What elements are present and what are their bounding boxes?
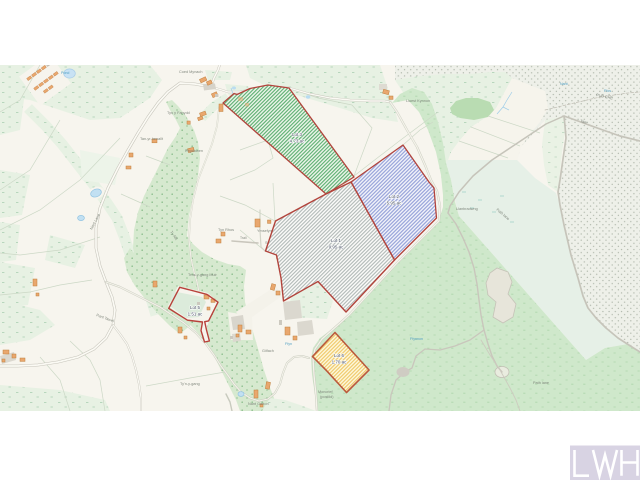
svg-text:Coed Mynach: Coed Mynach: [179, 70, 202, 74]
svg-text:4.73 ac: 4.73 ac: [290, 139, 306, 144]
svg-text:Tan-yr-henallt: Tan-yr-henallt: [140, 137, 164, 141]
svg-text:Path lane: Path lane: [533, 381, 549, 385]
svg-text:Tros-y-gang Muir: Tros-y-gang Muir: [188, 273, 217, 277]
svg-text:Lot 2: Lot 2: [389, 194, 400, 199]
svg-text:Ty'n-y-gang: Ty'n-y-gang: [180, 382, 200, 386]
svg-text:Lot 1: Lot 1: [331, 238, 342, 243]
svg-text:1.70 ac: 1.70 ac: [332, 360, 348, 365]
svg-text:Lot 5: Lot 5: [190, 305, 201, 310]
svg-text:Tyn y Fanydd: Tyn y Fanydd: [167, 111, 190, 115]
svg-text:Lot 6: Lot 6: [334, 353, 345, 358]
svg-text:Llanbradwng: Llanbradwng: [456, 207, 478, 211]
svg-text:Ffynnon: Ffynnon: [410, 337, 423, 341]
svg-text:Nant: Nant: [560, 82, 568, 86]
svg-text:Lot 3: Lot 3: [292, 132, 303, 137]
svg-text:Gilfach: Gilfach: [262, 349, 274, 353]
svg-text:9.95 ac: 9.95 ac: [329, 245, 345, 250]
svg-text:Ffyn: Ffyn: [285, 342, 292, 346]
svg-text:(postlid): (postlid): [320, 395, 334, 399]
svg-text:5.95 ac: 5.95 ac: [387, 201, 403, 206]
svg-text:Ffos: Ffos: [604, 89, 611, 93]
svg-text:Rhydowen: Rhydowen: [185, 149, 203, 153]
svg-text:Nant Garton: Nant Garton: [248, 402, 269, 406]
svg-text:Tyn Rhos: Tyn Rhos: [218, 228, 234, 232]
svg-text:Trail: Trail: [240, 236, 247, 240]
svg-text:Lluest Kynnon: Lluest Kynnon: [406, 99, 430, 103]
svg-text:1.51 ac: 1.51 ac: [188, 312, 204, 317]
svg-text:Pond: Pond: [61, 71, 69, 75]
svg-text:Moncrief: Moncrief: [318, 390, 334, 394]
